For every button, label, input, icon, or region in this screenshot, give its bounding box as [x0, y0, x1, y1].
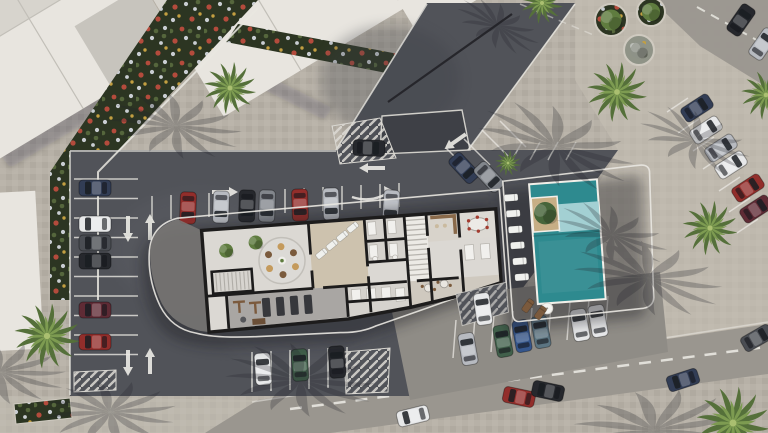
car [79, 180, 111, 196]
ramp-area [380, 110, 470, 154]
car [79, 235, 111, 251]
car [79, 216, 111, 232]
car [79, 334, 111, 350]
sun-lounger [508, 225, 522, 233]
car [79, 302, 111, 318]
aerial-site-render [0, 0, 768, 433]
sun-lounger [512, 257, 526, 265]
sun-lounger [515, 273, 529, 281]
car [212, 191, 229, 224]
hatched-zone-west [74, 370, 116, 392]
car [258, 190, 275, 223]
sun-lounger [510, 241, 524, 249]
car [179, 192, 196, 225]
car [353, 139, 386, 156]
sun-lounger [504, 194, 518, 202]
car [238, 190, 255, 223]
car [79, 253, 111, 269]
sun-lounger [506, 210, 520, 218]
car [291, 189, 308, 222]
site-plan-svg [0, 0, 768, 433]
